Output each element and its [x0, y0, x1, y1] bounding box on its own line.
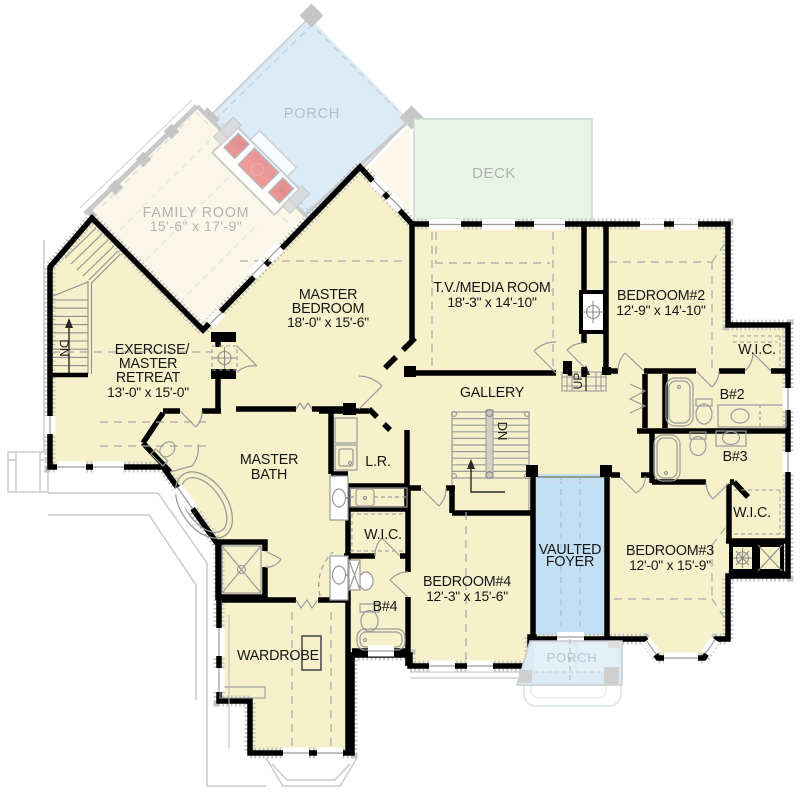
- svg-text:PORCH: PORCH: [547, 650, 598, 665]
- svg-text:BATH: BATH: [251, 467, 287, 483]
- svg-text:B#4: B#4: [373, 599, 398, 615]
- svg-text:B#3: B#3: [723, 449, 748, 465]
- svg-text:DN: DN: [57, 339, 71, 356]
- svg-text:W.I.C.: W.I.C.: [733, 505, 771, 521]
- svg-text:L.R.: L.R.: [365, 454, 390, 470]
- svg-text:W.I.C.: W.I.C.: [364, 527, 402, 543]
- svg-text:W.I.C.: W.I.C.: [738, 342, 776, 358]
- svg-text:B#2: B#2: [720, 387, 745, 403]
- svg-text:BEDROOM#4: BEDROOM#4: [423, 574, 511, 590]
- svg-text:T.V./MEDIA ROOM: T.V./MEDIA ROOM: [433, 280, 550, 296]
- svg-text:12'-3" x 15'-6": 12'-3" x 15'-6": [426, 589, 508, 604]
- svg-text:RETREAT: RETREAT: [116, 370, 181, 386]
- svg-text:12'-0" x 15'-9": 12'-0" x 15'-9": [629, 558, 711, 573]
- svg-text:DECK: DECK: [472, 165, 516, 182]
- svg-text:FOYER: FOYER: [546, 554, 594, 570]
- svg-text:18'-3" x 14'-10": 18'-3" x 14'-10": [447, 295, 537, 310]
- svg-text:MASTER: MASTER: [240, 452, 298, 468]
- svg-text:12'-9" x 14'-10": 12'-9" x 14'-10": [616, 303, 706, 318]
- svg-text:18'-0" x 15'-6": 18'-0" x 15'-6": [287, 315, 369, 330]
- svg-text:PORCH: PORCH: [284, 106, 340, 122]
- svg-text:13'-0" x 15'-0": 13'-0" x 15'-0": [107, 385, 189, 400]
- svg-text:BEDROOM#3: BEDROOM#3: [626, 543, 714, 559]
- svg-text:15'-6" x 17'-9": 15'-6" x 17'-9": [150, 219, 242, 234]
- svg-text:BEDROOM#2: BEDROOM#2: [617, 288, 705, 304]
- svg-text:DN: DN: [495, 422, 510, 441]
- svg-text:WARDROBE: WARDROBE: [237, 648, 319, 664]
- svg-text:GALLERY: GALLERY: [460, 385, 525, 401]
